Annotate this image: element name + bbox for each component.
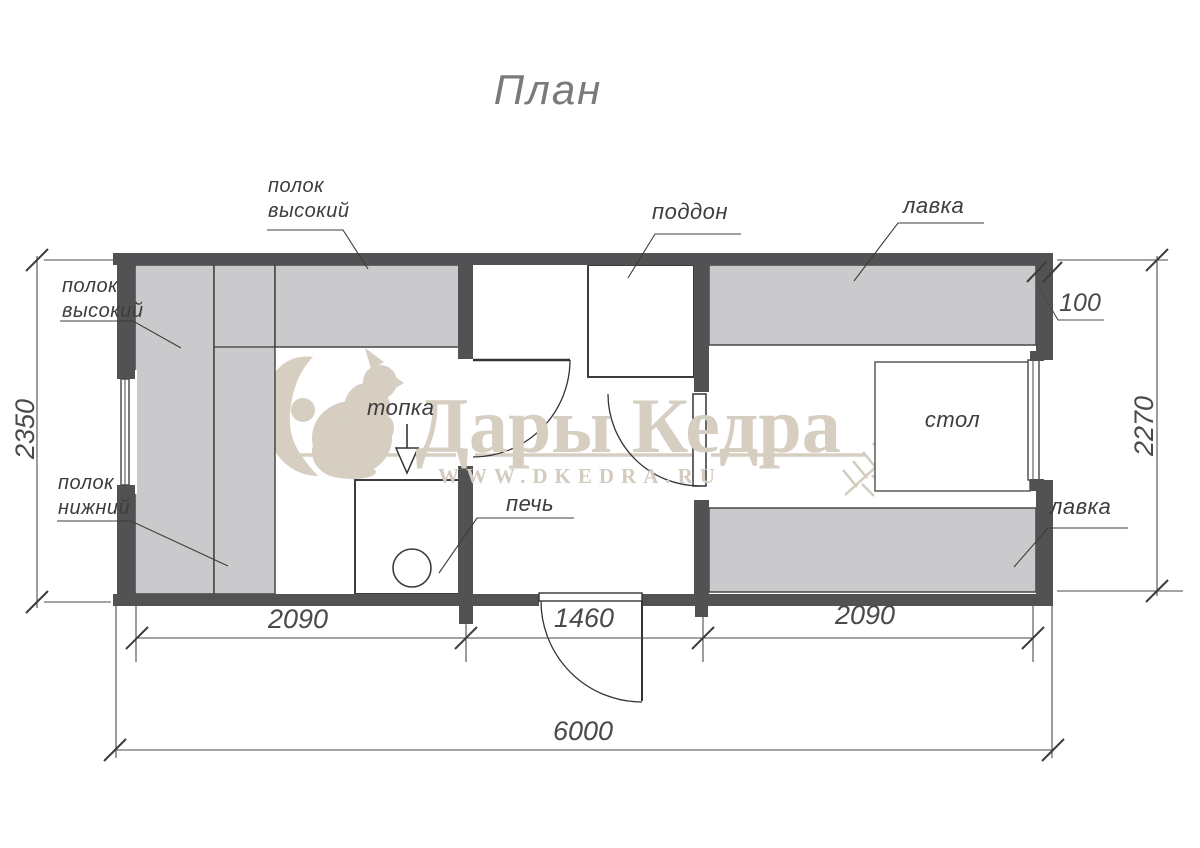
dim-right-height: 2270 — [1129, 391, 1157, 461]
bench-bottom — [709, 508, 1036, 592]
label-shelf-high-top: полок высокий — [268, 174, 349, 224]
floor-plan-page: Дары Кедра WWW.DKEDRA.RU План полок высо… — [0, 0, 1200, 848]
label-firebox: топка — [367, 395, 435, 420]
window-right — [1028, 351, 1053, 491]
shelf-low — [214, 265, 275, 594]
shower-tray — [588, 265, 694, 377]
bench-top — [709, 265, 1036, 345]
label-bench-top: лавка — [903, 193, 964, 218]
dim-wall-thickness: 100 — [1056, 289, 1104, 318]
dim-left-height: 2350 — [10, 394, 38, 464]
stove-chimney — [393, 549, 431, 587]
watermark-brand-text: Дары Кедра — [408, 381, 848, 471]
wall-top — [113, 253, 1053, 265]
label-tray: поддон — [652, 199, 728, 224]
dim-right-room-width: 2090 — [815, 600, 915, 631]
label-stove: печь — [506, 491, 554, 516]
dim-total-width: 6000 — [533, 716, 633, 747]
watermark-site-text: WWW.DKEDRA.RU — [430, 464, 730, 489]
dim-left-room-width: 2090 — [248, 604, 348, 635]
wall-stub-1 — [459, 606, 473, 624]
label-shelf-low: полок нижний — [58, 471, 130, 521]
label-table: стол — [905, 407, 1000, 432]
dim-middle-room-width: 1460 — [534, 603, 634, 634]
shelf-high-top — [275, 265, 463, 347]
label-shelf-high-left: полок высокий — [62, 274, 143, 324]
shelf-high-left — [135, 265, 214, 594]
label-bench-bottom: лавка — [1050, 494, 1111, 519]
page-title: План — [448, 66, 648, 114]
wall-stub-2 — [695, 606, 708, 617]
